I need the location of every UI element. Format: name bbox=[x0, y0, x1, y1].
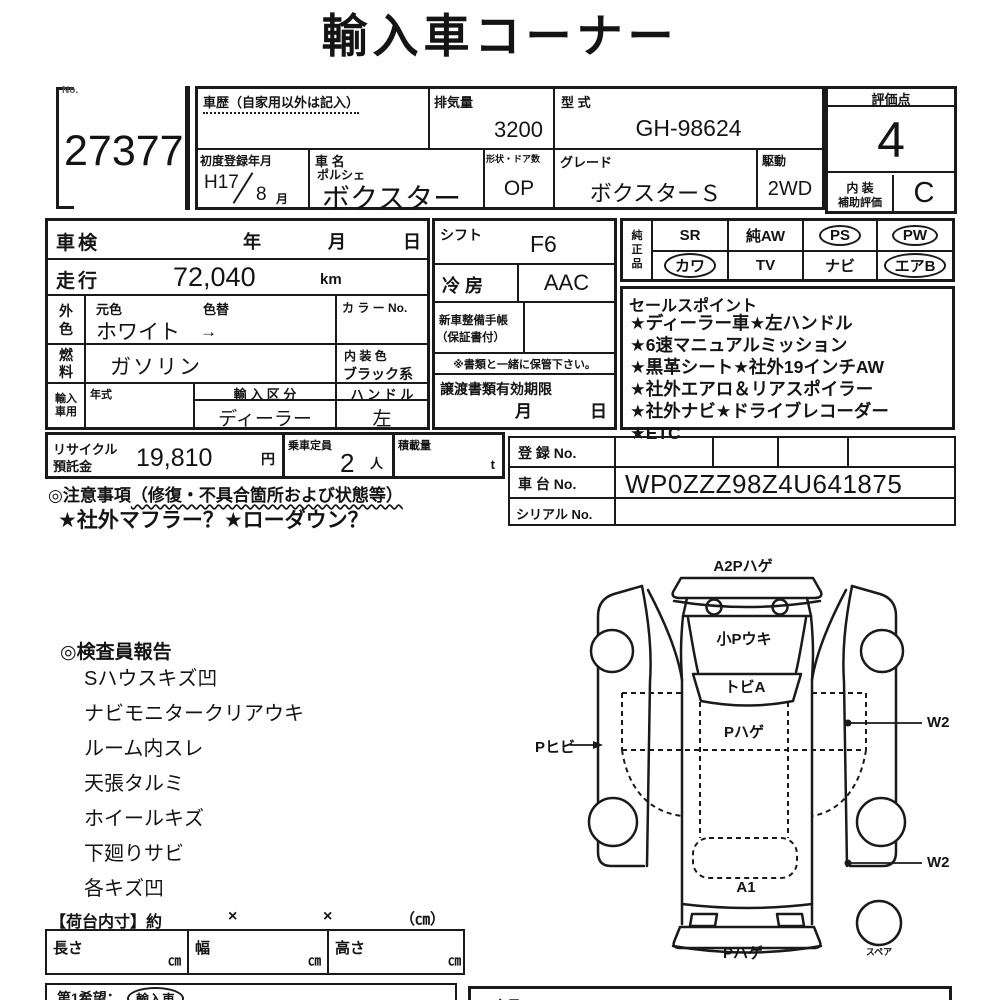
cargo-times-1: × bbox=[228, 908, 237, 926]
serial-no-row: シリアル No. bbox=[510, 497, 954, 524]
equipment-item-label: ナビ bbox=[825, 255, 855, 276]
drive-value: 2WD bbox=[758, 178, 822, 201]
interior-color-cell: 内 装 色 ブラック系 bbox=[335, 345, 427, 382]
history-cell: 車歴（自家用以外は記入） bbox=[198, 89, 428, 148]
member-no-label: 会員No. bbox=[493, 996, 544, 1000]
equipment-cell: カワ bbox=[653, 250, 727, 279]
cargo-unit: （㎝） bbox=[400, 908, 445, 929]
recycle-label-2: 預託金 bbox=[53, 456, 92, 475]
drive-label: 駆動 bbox=[762, 152, 786, 169]
inspector-items: Sハウスキズ凹 ナビモニタークリアウキ ルーム内スレ 天張タルミ ホイールキズ … bbox=[84, 662, 304, 907]
handle-value: 左 bbox=[337, 404, 427, 431]
equipment-cell: 純AW bbox=[727, 221, 802, 250]
first-reg-month: 8 bbox=[256, 184, 267, 206]
ac-value: AAC bbox=[544, 270, 589, 296]
inspector-item: ナビモニタークリアウキ bbox=[84, 697, 304, 732]
cautions-paren: （修復・不具合箇所および状態等） bbox=[131, 486, 403, 505]
reg-no-label: 登 録 No. bbox=[510, 438, 616, 466]
equipment-cell: PW bbox=[876, 221, 952, 250]
first-reg-year: H17 bbox=[204, 172, 239, 194]
fuel-label: 燃料 bbox=[48, 345, 86, 382]
sales-points-lines: ★ディーラー車★左ハンドル ★6速マニュアルミッション ★黒革シート★社外19イ… bbox=[630, 312, 889, 444]
diagram-roof-label: Pハゲ bbox=[724, 721, 764, 742]
diagram-hood-label: 小Pウキ bbox=[716, 628, 771, 649]
transfer-day: 日 bbox=[590, 397, 607, 422]
equipment-cell: SR bbox=[653, 221, 727, 250]
cautions-title: ◎注意事項 bbox=[48, 486, 131, 505]
ext-color-value: ホワイト bbox=[96, 316, 180, 346]
first-choice-value: 輸入車 bbox=[127, 987, 184, 1000]
auction-sheet: 輸入車コーナー No. 27377 車歴（自家用以外は記入） 排気量 3200 … bbox=[0, 0, 1000, 1000]
color-no-label: カ ラ ー No. bbox=[342, 299, 407, 316]
handle-cell: ハ ン ド ル 左 bbox=[335, 384, 427, 427]
mileage-unit: km bbox=[320, 271, 342, 288]
diagram-rear-window-label: A1 bbox=[736, 879, 755, 896]
sales-points-box: セールスポイント ★ディーラー車★左ハンドル ★6速マニュアルミッション ★黒革… bbox=[620, 286, 955, 430]
cargo-length-label: 長さ bbox=[53, 937, 83, 958]
fuel-row: 燃料 ガソリン 内 装 色 ブラック系 bbox=[48, 343, 427, 382]
sales-point: ★ディーラー車★左ハンドル bbox=[630, 312, 889, 334]
fuel-value: ガソリン bbox=[110, 351, 202, 381]
inspector-label: ◎検査員報告 bbox=[60, 637, 172, 664]
cargo-table: 長さ ㎝ 幅 ㎝ 高さ ㎝ bbox=[45, 929, 465, 975]
diagram-windshield-label: トビA bbox=[725, 676, 766, 697]
interior-score: C bbox=[894, 175, 954, 211]
lot-no-label: No. bbox=[62, 85, 78, 96]
shape-value: OP bbox=[485, 177, 553, 201]
shaken-day: 日 bbox=[403, 228, 421, 254]
drive-cell: 駆動 2WD bbox=[756, 148, 822, 207]
grade-label: グレード bbox=[560, 152, 612, 171]
ac-row: 冷 房 AAC bbox=[435, 263, 614, 301]
inspector-item: 天張タルミ bbox=[84, 767, 304, 802]
mileage-value: 72,040 bbox=[173, 262, 256, 293]
capacity-label: 乗車定員 bbox=[288, 437, 332, 453]
displacement-label: 排気量 bbox=[434, 92, 473, 111]
model-code-label: 型 式 bbox=[561, 92, 591, 111]
capacity-unit: 人 bbox=[370, 453, 383, 472]
car-diagram bbox=[530, 552, 980, 970]
transfer-month: 月 bbox=[515, 397, 532, 422]
cargo-length-cell: 長さ ㎝ bbox=[47, 931, 187, 973]
inspector-item: ルーム内スレ bbox=[84, 732, 304, 767]
shift-row: シフト F6 bbox=[435, 221, 614, 263]
equipment-item-label: TV bbox=[756, 257, 775, 274]
shift-label: シフト bbox=[440, 225, 482, 245]
maintenance-book-row: 新車整備手帳 （保証書付） bbox=[435, 301, 614, 352]
shaken-label: 車検 bbox=[56, 228, 100, 255]
transfer-label: 譲渡書類有効期限 bbox=[440, 379, 552, 399]
capacity-value: 2 bbox=[340, 448, 354, 479]
book-label-1: 新車整備手帳 bbox=[439, 312, 508, 328]
mileage-label: 走行 bbox=[56, 266, 100, 293]
handle-label: ハ ン ド ル bbox=[337, 384, 427, 401]
reg-divider bbox=[847, 438, 849, 466]
displacement-value: 3200 bbox=[494, 117, 543, 143]
car-name-cell: 車 名 ポルシェ ボクスター bbox=[308, 148, 483, 207]
reg-divider bbox=[712, 438, 714, 466]
reg-no-row: 登 録 No. bbox=[510, 438, 954, 466]
diagram-front-label: A2Pハゲ bbox=[713, 555, 772, 576]
load-unit: t bbox=[491, 457, 495, 472]
inspector-item: ホイールキズ bbox=[84, 802, 304, 837]
load-label: 積載量 bbox=[398, 437, 431, 453]
registration-block: 登 録 No. 車 台 No. WP0ZZZ98Z4U641875 シリアル N… bbox=[508, 436, 956, 526]
inspector-item: 各キズ凹 bbox=[84, 872, 304, 907]
shaken-row: 車検 年 月 日 bbox=[48, 221, 427, 258]
car-diagram-svg bbox=[530, 552, 980, 970]
history-label: 車歴（自家用以外は記入） bbox=[203, 92, 359, 114]
import-label: 輸入車用 bbox=[48, 384, 86, 427]
chassis-no-label: 車 台 No. bbox=[510, 468, 616, 497]
inspector-item: Sハウスキズ凹 bbox=[84, 662, 304, 697]
serial-no-label: シリアル No. bbox=[510, 499, 616, 524]
chassis-no-value: WP0ZZZ98Z4U641875 bbox=[625, 469, 902, 500]
ext-color-label: 外色 bbox=[48, 296, 86, 343]
member-no-box: 会員No. bbox=[468, 986, 952, 1000]
recycle-box: リサイクル 預託金 19,810 円 bbox=[45, 432, 285, 479]
equipment-cell: ナビ bbox=[802, 250, 876, 279]
cargo-width-unit: ㎝ bbox=[308, 950, 321, 969]
shaken-month: 月 bbox=[328, 228, 346, 254]
cargo-width-label: 幅 bbox=[195, 937, 210, 958]
lot-divider bbox=[185, 86, 190, 210]
keep-note-row: ※書類と一緒に保管下さい。 bbox=[435, 352, 614, 373]
sales-point: ★黒革シート★社外19インチAW bbox=[630, 356, 889, 378]
import-class-cell: 輸 入 区 分 ディーラー bbox=[193, 384, 335, 427]
color-no-cell: カ ラ ー No. bbox=[335, 296, 427, 343]
score-label: 評価点 bbox=[828, 89, 954, 107]
diagram-left-side-label: Pヒビ bbox=[535, 736, 575, 757]
ac-label: 冷 房 bbox=[442, 272, 483, 298]
page-title: 輸入車コーナー bbox=[0, 0, 1000, 66]
sales-point: ★社外ナビ★ドライブレコーダー bbox=[630, 400, 889, 422]
shaken-year: 年 bbox=[243, 228, 261, 254]
cargo-height-unit: ㎝ bbox=[448, 950, 461, 969]
equipment-item-label: SR bbox=[680, 227, 701, 244]
mileage-row: 走行 72,040 km bbox=[48, 258, 427, 294]
left-panel: 車検 年 月 日 走行 72,040 km 外色 元色 色替 ホワイト → カ … bbox=[45, 218, 430, 430]
cautions-heading: ◎注意事項（修復・不具合箇所および状態等） bbox=[48, 481, 403, 506]
diagram-rear-label: Pハゲ bbox=[723, 942, 763, 963]
shape-label: 形状・ドア数 bbox=[486, 152, 540, 165]
equipment-item-label: PS bbox=[819, 225, 861, 246]
color-arrow: → bbox=[200, 322, 217, 342]
reg-divider bbox=[777, 438, 779, 466]
first-choice-box: 第1希望： 輸入車 bbox=[45, 983, 457, 1000]
import-class-value: ディーラー bbox=[195, 404, 335, 431]
equipment-item-label: 純AW bbox=[746, 225, 785, 246]
grade-value: ボクスターＳ bbox=[555, 176, 756, 208]
equipment-cell: TV bbox=[727, 250, 802, 279]
equipment-grid: 純正品 SR 純AW PS PW カワ TV ナビ エアB bbox=[620, 218, 955, 282]
interior-color-value: ブラック系 bbox=[343, 364, 413, 384]
sales-point: ★6速マニュアルミッション bbox=[630, 334, 889, 356]
car-name-value: ボクスター bbox=[322, 177, 461, 217]
interior-label-2: 補助評価 bbox=[828, 194, 892, 210]
diagram-w2-lower-label: W2 bbox=[927, 854, 950, 871]
displacement-cell: 排気量 3200 bbox=[428, 89, 553, 148]
equipment-label: 純正品 bbox=[623, 221, 653, 279]
sales-point: ★社外エアロ＆リアスポイラー bbox=[630, 378, 889, 400]
import-class-label: 輸 入 区 分 bbox=[195, 384, 335, 401]
diagram-spare-label: スペア bbox=[866, 945, 892, 958]
interior-label-cell: 内 装 補助評価 bbox=[828, 175, 894, 211]
transfer-row: 譲渡書類有効期限 月 日 bbox=[435, 373, 614, 427]
year-model-cell: 年式 bbox=[86, 384, 193, 427]
shape-cell: 形状・ドア数 OP bbox=[483, 148, 553, 207]
evaluation-box: 評価点 4 内 装 補助評価 C bbox=[825, 86, 957, 214]
diagram-w2-upper-label: W2 bbox=[927, 714, 950, 731]
first-choice-label: 第1希望： bbox=[57, 988, 121, 1000]
score-value: 4 bbox=[828, 109, 954, 173]
header-table: 車歴（自家用以外は記入） 排気量 3200 型 式 GH-98624 初度登録年… bbox=[195, 86, 825, 210]
equipment-cell: エアB bbox=[876, 250, 952, 279]
cargo-width-cell: 幅 ㎝ bbox=[187, 931, 327, 973]
load-box: 積載量 t bbox=[392, 432, 505, 479]
book-label-2: （保証書付） bbox=[436, 329, 505, 345]
cargo-height-label: 高さ bbox=[335, 937, 365, 958]
lot-number: 27377 bbox=[64, 127, 182, 176]
year-model-label: 年式 bbox=[90, 386, 112, 402]
equipment-item-label: PW bbox=[892, 225, 938, 246]
import-row: 輸入車用 年式 輸 入 区 分 ディーラー ハ ン ド ル 左 bbox=[48, 382, 427, 427]
equipment-cell: PS bbox=[802, 221, 876, 250]
cargo-times-2: × bbox=[323, 908, 332, 926]
cautions-line: ★社外マフラー？★ローダウン？ bbox=[58, 504, 369, 534]
color-change-label: 色替 bbox=[203, 299, 229, 318]
inspector-item: 下廻りサビ bbox=[84, 837, 304, 872]
cargo-length-unit: ㎝ bbox=[168, 950, 181, 969]
keep-note: ※書類と一緒に保管下さい。 bbox=[453, 356, 596, 372]
equipment-item-label: エアB bbox=[884, 253, 947, 278]
cargo-height-cell: 高さ ㎝ bbox=[327, 931, 467, 973]
middle-panel: シフト F6 冷 房 AAC 新車整備手帳 （保証書付） ※書類と一緒に保管下さ… bbox=[432, 218, 617, 430]
model-code-value: GH-98624 bbox=[555, 115, 822, 142]
chassis-no-row: 車 台 No. WP0ZZZ98Z4U641875 bbox=[510, 466, 954, 497]
first-reg-cell: 初度登録年月 H17 8 月 bbox=[198, 148, 308, 207]
ac-value-cell: AAC bbox=[517, 265, 614, 301]
capacity-box: 乗車定員 2 人 bbox=[282, 432, 395, 479]
ext-color-row: 外色 元色 色替 ホワイト → カ ラ ー No. bbox=[48, 294, 427, 343]
equipment-item-label: カワ bbox=[664, 253, 716, 278]
model-code-cell: 型 式 GH-98624 bbox=[553, 89, 822, 148]
first-reg-month-unit: 月 bbox=[276, 190, 288, 207]
shift-value: F6 bbox=[530, 231, 557, 258]
interior-color-label: 内 装 色 bbox=[344, 347, 387, 364]
book-label-cell: 新車整備手帳 （保証書付） bbox=[435, 303, 525, 352]
first-reg-label: 初度登録年月 bbox=[200, 152, 272, 169]
recycle-amount: 19,810 bbox=[136, 444, 212, 473]
grade-cell: グレード ボクスターＳ bbox=[553, 148, 756, 207]
recycle-yen: 円 bbox=[261, 449, 275, 469]
